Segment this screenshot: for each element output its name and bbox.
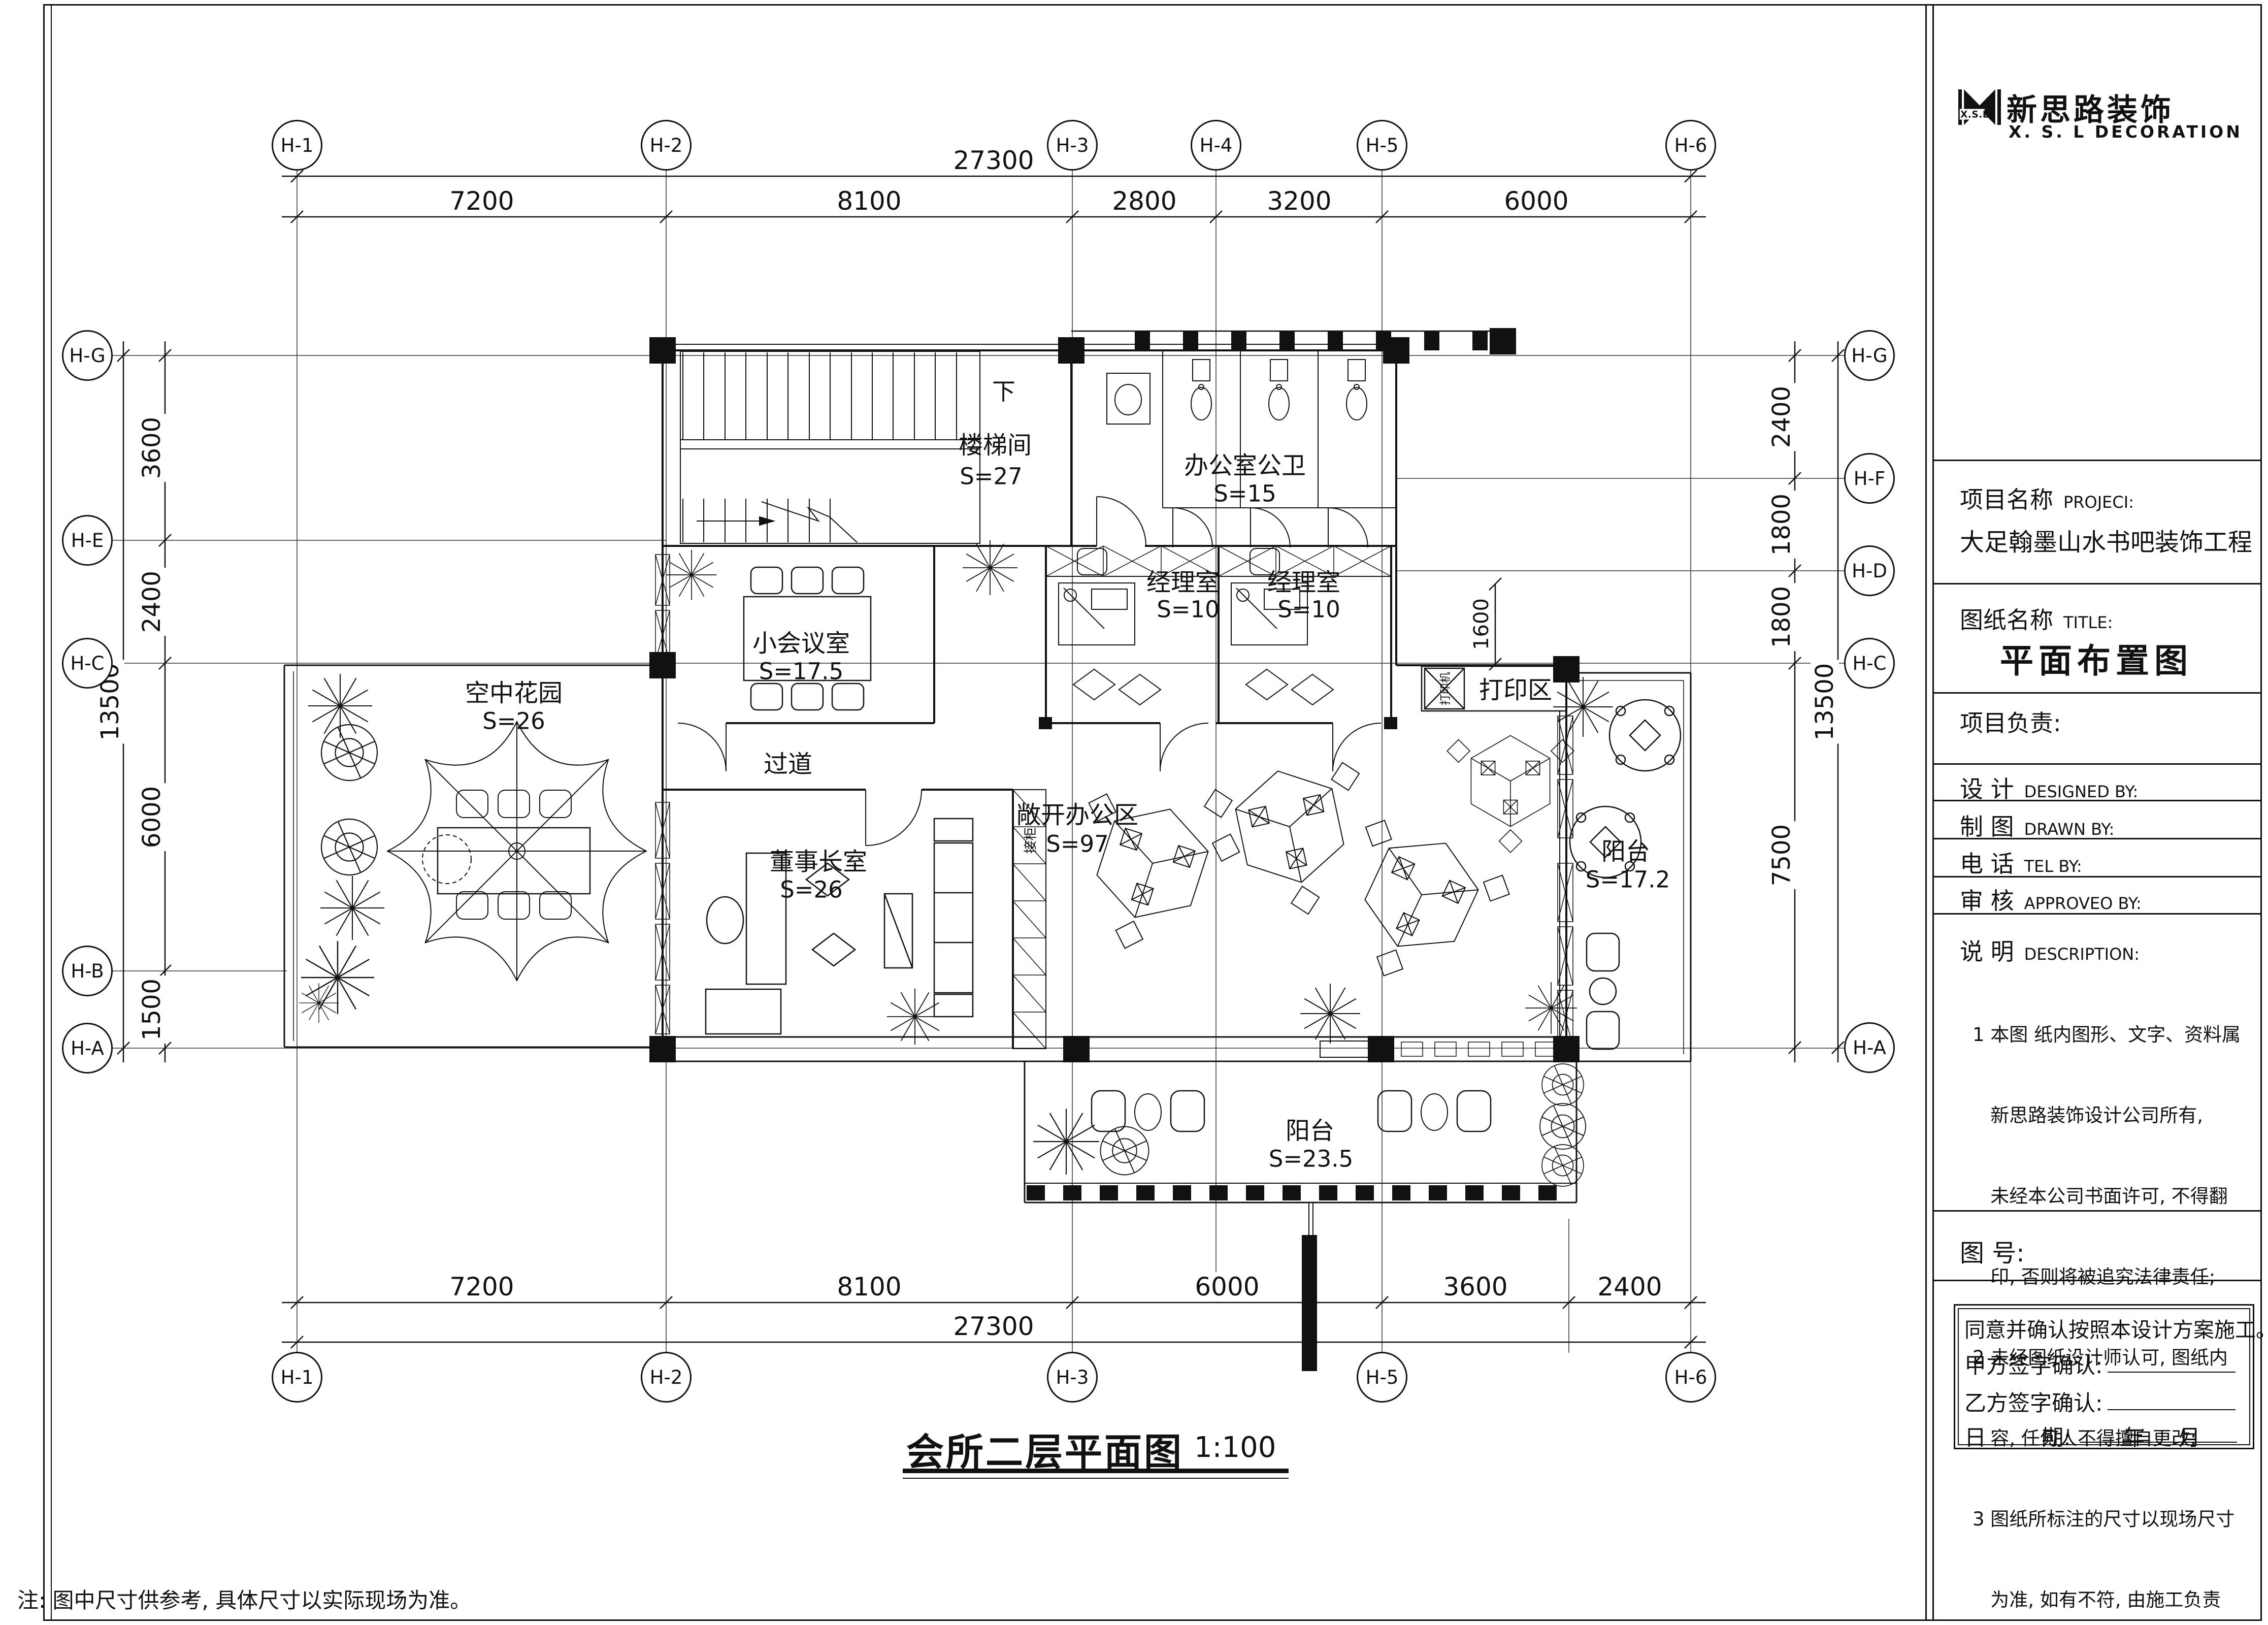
tel-row: 电 话TEL BY: [1960, 846, 2082, 879]
sheet-note: 注: 图中尺寸供参考, 具体尺寸以实际现场为准。 [17, 1583, 471, 1614]
room-label-garden: 空中花园 [465, 673, 563, 708]
dim-top-seg-3: 2800 [1108, 186, 1180, 216]
dim-top-seg-1: 7200 [445, 186, 518, 216]
design-row: 设 计DESIGNED BY: [1960, 771, 2138, 804]
walls [284, 331, 1691, 1202]
dim-bottom-seg-2: 8100 [833, 1272, 905, 1302]
room-label-manager1: 经理室 [1146, 562, 1220, 598]
plants [299, 540, 1613, 1186]
titleblock-border-inner [1932, 4, 1934, 1619]
project-label-en: PROJECI: [2063, 493, 2134, 512]
axis-right-g: H-G [1844, 330, 1895, 381]
company-logo-en: X. S. L DECORATION [2009, 122, 2243, 142]
axis-top-2: H-2 [641, 120, 692, 171]
printer-label: 打印机 [1436, 672, 1453, 705]
dim-left-seg-4: 1500 [138, 976, 166, 1044]
agreement-text: 同意并确认按照本设计方案施工。 [1964, 1313, 2268, 1343]
axis-left-c: H-C [62, 638, 113, 689]
axis-top-4: H-4 [1191, 120, 1241, 171]
axis-bottom-1: H-1 [272, 1352, 322, 1403]
staircase [680, 351, 980, 543]
dim-right-overall: 13500 [1811, 660, 1839, 744]
draw-label-en: DRAWN BY: [2024, 820, 2115, 839]
dim-top-overall: 27300 [949, 146, 1038, 175]
party-b-signature-line [2108, 1409, 2236, 1410]
room-label-toilet: 办公室公卫 [1184, 445, 1306, 481]
figure-no-label: 图 号: [1960, 1233, 2024, 1269]
sheet-label-en: TITLE: [2063, 613, 2113, 632]
party-b-label: 乙方签字确认: [1964, 1386, 2103, 1417]
dim-bottom-seg-4: 3600 [1439, 1272, 1511, 1302]
desc-label-cn: 说 明 [1960, 938, 2014, 965]
room-label-balcony-right: 阳台 [1601, 831, 1650, 867]
signature-box: 同意并确认按照本设计方案施工。 甲方签字确认: 乙方签字确认: 日 期: 年 月 [1954, 1304, 2254, 1449]
note-line: 3 图纸所标注的尺寸以现场尺寸 [1973, 1506, 2241, 1533]
room-area-manager2: S=10 [1277, 596, 1340, 623]
garden-umbrella [387, 722, 646, 981]
titleblock-divider [1932, 692, 2260, 694]
dim-left-seg-3: 6000 [138, 783, 166, 851]
chairman-furniture [706, 790, 1046, 1049]
note-line: 为准, 如有不符, 由施工负责 [1973, 1586, 2241, 1613]
lead-label: 项目负责: [1960, 705, 2061, 738]
dim-right-seg-4: 7500 [1767, 821, 1796, 889]
dim-top-seg-4: 3200 [1263, 186, 1335, 216]
axis-top-5: H-5 [1357, 120, 1407, 171]
date-year: 年 [2123, 1420, 2145, 1452]
room-label-meeting: 小会议室 [752, 623, 850, 659]
axis-left-e: H-E [62, 515, 113, 566]
titleblock-divider [1932, 583, 2260, 584]
room-label-open-office: 敞开办公区 [1016, 795, 1138, 830]
project-label-cn: 项目名称 [1960, 486, 2053, 513]
room-area-manager1: S=10 [1157, 596, 1220, 623]
room-label-corridor: 过道 [764, 744, 812, 779]
design-label-en: DESIGNED BY: [2024, 782, 2139, 801]
axis-bottom-4: H-5 [1357, 1352, 1407, 1403]
room-label-balcony-bottom: 阳台 [1286, 1111, 1334, 1146]
railing [1027, 1185, 1557, 1200]
axis-left-a: H-A [62, 1023, 113, 1074]
title-underline-thin [903, 1478, 1289, 1479]
room-label-print: 打印区 [1479, 670, 1552, 705]
room-area-toilet: S=15 [1213, 480, 1276, 507]
cabinet-label: 接柜 [1021, 827, 1039, 854]
dim-top-seg-2: 8100 [833, 186, 905, 216]
approve-label-en: APPROVEO BY: [2024, 894, 2142, 913]
note-line: 新思路装饰设计公司所有, [1973, 1102, 2241, 1129]
party-a-label: 甲方签字确认: [1964, 1348, 2103, 1380]
tel-label-cn: 电 话 [1960, 850, 2014, 877]
room-area-garden: S=26 [482, 708, 545, 735]
dim-right-seg-2: 1800 [1767, 491, 1796, 559]
dim-bottom-seg-3: 6000 [1191, 1272, 1263, 1302]
svg-text:X.S.L: X.S.L [1960, 109, 1989, 120]
drawing-scale: 1:100 [1194, 1431, 1276, 1464]
draw-label-cn: 制 图 [1960, 813, 2014, 840]
dim-left-seg-2: 2400 [138, 568, 166, 636]
drawing-title: 会所二层平面图 [906, 1422, 1184, 1476]
date-label: 日 期: [1964, 1420, 2071, 1452]
dim-left-seg-1: 3600 [138, 414, 166, 482]
axis-right-a: H-A [1844, 1022, 1895, 1073]
dim-top-seg-5: 6000 [1500, 186, 1572, 216]
desc-label-en: DESCRIPTION: [2024, 945, 2140, 964]
titleblock-divider [1932, 763, 2260, 765]
axis-bottom-2: H-2 [641, 1352, 692, 1403]
desc-row: 说 明DESCRIPTION: [1960, 933, 2140, 967]
draw-row: 制 图DRAWN BY: [1960, 808, 2114, 842]
sheet-label: 图纸名称TITLE: [1960, 602, 2113, 635]
axis-right-f: H-F [1844, 453, 1895, 504]
room-area-meeting: S=17.5 [759, 658, 843, 685]
stair-down-label: 下 [992, 373, 1015, 407]
axis-top-1: H-1 [272, 120, 322, 171]
dim-print-depth: 1600 [1470, 595, 1493, 653]
open-office-pods [1049, 735, 1574, 1009]
description-notes: 1 本图 纸内图形、文字、资料属 新思路装饰设计公司所有, 未经本公司书面许可,… [1973, 967, 2241, 1625]
axis-grid [112, 170, 1845, 1353]
drawing-sheet: H-1 H-2 H-3 H-4 H-5 H-6 H-1 H-2 H-3 H-5 … [0, 0, 2268, 1625]
project-label: 项目名称PROJECI: [1960, 481, 2134, 515]
room-area-balcony-bottom: S=23.5 [1269, 1146, 1353, 1173]
axis-top-6: H-6 [1665, 120, 1716, 171]
titleblock-border-outer [1925, 4, 1927, 1619]
axis-bottom-5: H-6 [1665, 1352, 1716, 1403]
dim-right-seg-3: 1800 [1767, 583, 1796, 651]
date-month: 月 [2179, 1420, 2200, 1452]
axis-left-b: H-B [62, 946, 113, 996]
date-line [2080, 1442, 2237, 1443]
room-area-stair: S=27 [960, 463, 1023, 490]
project-name: 大足翰墨山水书吧装饰工程 [1960, 522, 2252, 558]
axis-right-d: H-D [1844, 545, 1895, 596]
room-area-balcony-right: S=17.2 [1586, 866, 1670, 893]
company-logo-mark: X.S.L [1958, 87, 2001, 127]
flag-pole [1302, 1235, 1317, 1371]
room-area-chairman: S=26 [780, 876, 843, 903]
approve-label-cn: 审 核 [1960, 887, 2014, 915]
approve-row: 审 核APPROVEO BY: [1960, 883, 2142, 916]
room-label-stair: 楼梯间 [959, 425, 1032, 461]
dim-bottom-seg-1: 7200 [445, 1272, 518, 1302]
sheet-name: 平面布置图 [1932, 634, 2260, 682]
dim-bottom-overall: 27300 [949, 1312, 1038, 1341]
note-line: 未经本公司书面许可, 不得翻 [1973, 1183, 2241, 1210]
titleblock-divider [1932, 460, 2260, 461]
tel-label-en: TEL BY: [2024, 857, 2082, 876]
room-area-open-office: S=97 [1046, 831, 1109, 858]
note-line: 1 本图 纸内图形、文字、资料属 [1973, 1021, 2241, 1048]
sheet-label-cn: 图纸名称 [1960, 606, 2053, 634]
room-label-manager2: 经理室 [1267, 562, 1340, 598]
axis-left-g: H-G [62, 330, 113, 381]
axis-right-c: H-C [1844, 638, 1895, 689]
axis-bottom-3: H-3 [1047, 1352, 1098, 1403]
axis-top-3: H-3 [1047, 120, 1098, 171]
party-a-signature-line [2108, 1372, 2236, 1373]
room-label-chairman: 董事长室 [770, 841, 867, 877]
design-label-cn: 设 计 [1960, 775, 2014, 803]
dim-bottom-seg-5: 2400 [1593, 1272, 1666, 1302]
dim-right-seg-1: 2400 [1767, 383, 1796, 451]
